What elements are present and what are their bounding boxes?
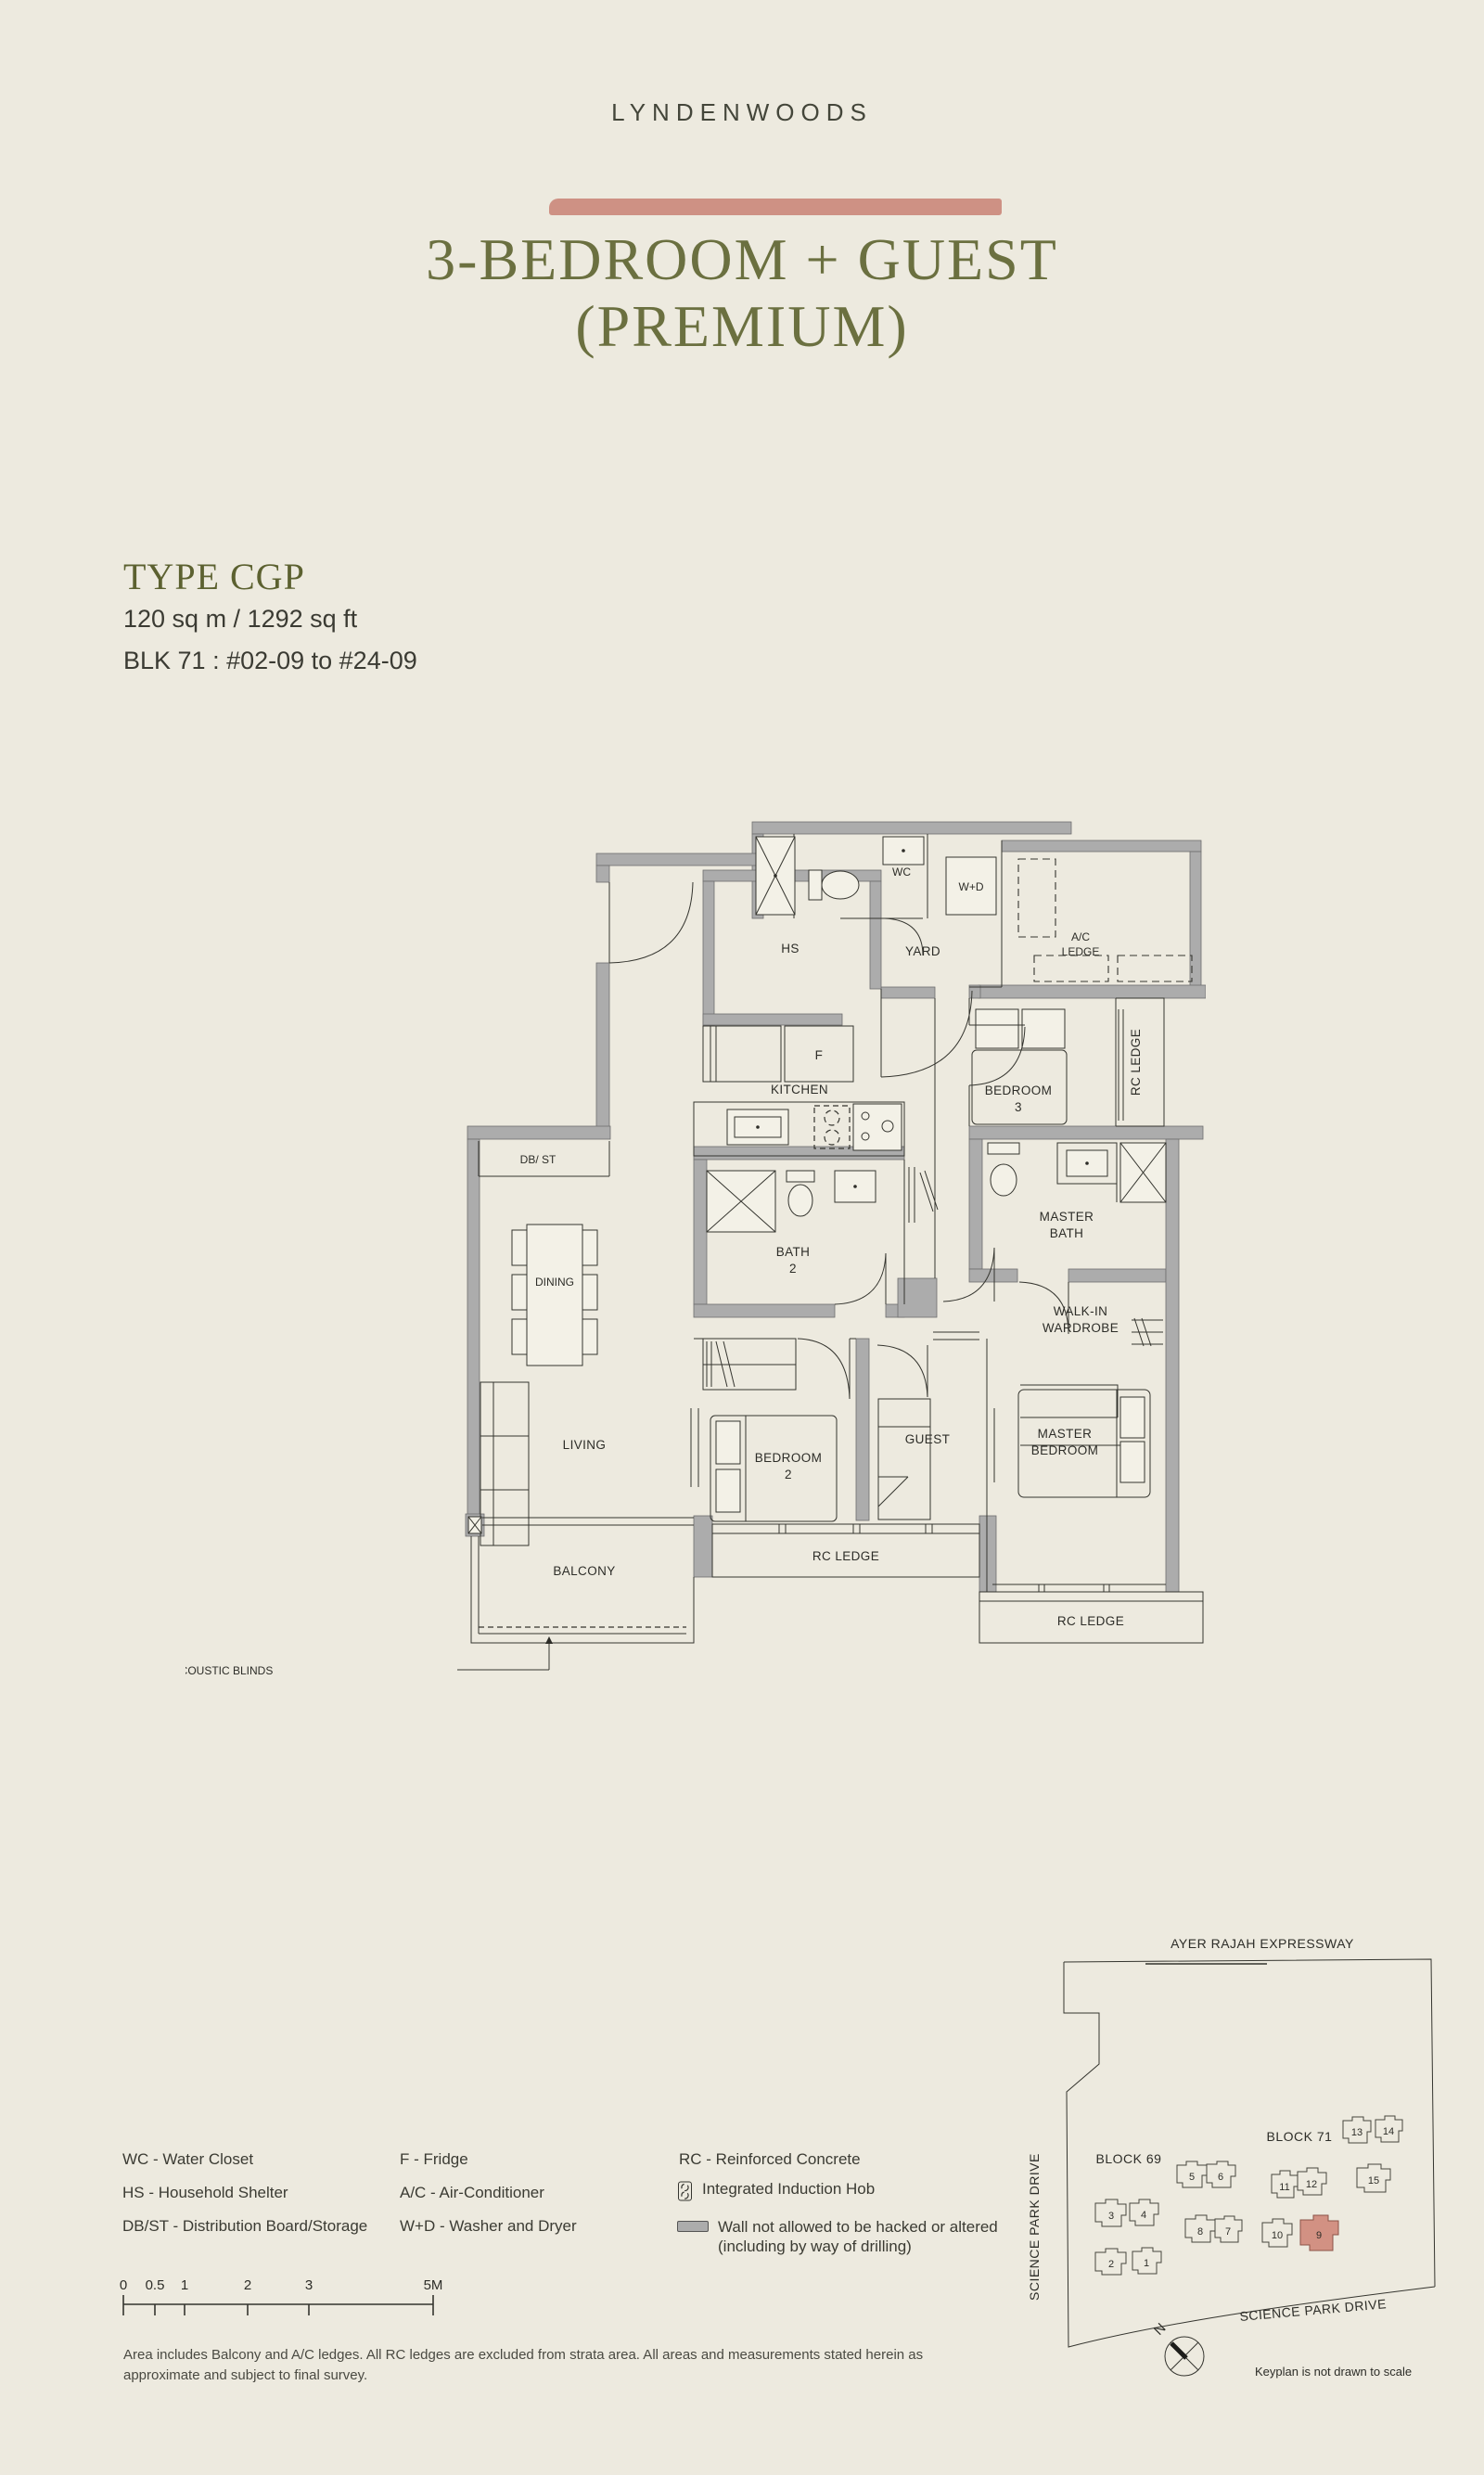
svg-text:1: 1: [1144, 2258, 1149, 2269]
unit-type: TYPE CGP: [123, 555, 305, 598]
legend-rc: RC - Reinforced Concrete: [679, 2150, 861, 2169]
highlighted-unit-9: 9: [1300, 2215, 1338, 2251]
balcony-structure: [457, 1517, 694, 1670]
yard-door: [881, 989, 972, 1077]
svg-text:9: 9: [1316, 2230, 1322, 2241]
block-71-label: BLOCK 71: [1267, 2129, 1333, 2144]
scale-bar: 0 0.5 1 2 3 5M: [109, 2273, 480, 2328]
legend-wd: W+D - Washer and Dryer: [400, 2217, 577, 2236]
svg-text:HS: HS: [781, 942, 800, 955]
svg-text:YARD: YARD: [905, 944, 940, 958]
structural-walls: [466, 822, 1206, 1592]
svg-text:BATH: BATH: [776, 1245, 811, 1259]
keyplan-expressway: AYER RAJAH EXPRESSWAY: [1171, 1936, 1354, 1951]
svg-text:W+D: W+D: [959, 880, 984, 893]
legend-hob-row: Integrated Induction Hob: [677, 2180, 875, 2202]
svg-text:WC: WC: [892, 866, 911, 878]
svg-text:2: 2: [789, 1262, 797, 1276]
svg-text:14: 14: [1383, 2126, 1394, 2137]
bedroom2-furniture: [691, 1339, 850, 1521]
svg-text:11: 11: [1279, 2182, 1289, 2193]
svg-text:5: 5: [1189, 2172, 1195, 2183]
footnote-line1: Area includes Balcony and A/C ledges. Al…: [123, 2345, 923, 2366]
legend-f: F - Fridge: [400, 2150, 468, 2169]
svg-text:10: 10: [1272, 2230, 1283, 2241]
svg-text:LEDGE: LEDGE: [1062, 945, 1100, 958]
svg-text:DINING: DINING: [535, 1276, 574, 1289]
svg-text:RC LEDGE: RC LEDGE: [1057, 1614, 1124, 1628]
ac-ledge: [1018, 859, 1192, 981]
keyplan-note: Keyplan is not drawn to scale: [1255, 2365, 1412, 2379]
svg-text:0: 0: [120, 2277, 127, 2293]
svg-text:KITCHEN: KITCHEN: [771, 1083, 828, 1096]
keyplan-road-bottom: SCIENCE PARK DRIVE: [1239, 2296, 1388, 2324]
unit-area: 120 sq m / 1292 sq ft: [123, 605, 357, 634]
legend-wall-line1: Wall not allowed to be hacked or altered: [718, 2218, 998, 2236]
wall-swatch: [677, 2221, 709, 2232]
footnote: Area includes Balcony and A/C ledges. Al…: [123, 2345, 923, 2386]
legend-wall-row: Wall not allowed to be hacked or altered…: [677, 2217, 998, 2256]
svg-text:2: 2: [244, 2277, 251, 2293]
svg-text:A/C: A/C: [1071, 930, 1090, 943]
svg-text:DB/ ST: DB/ ST: [520, 1153, 556, 1166]
svg-text:4: 4: [1141, 2210, 1146, 2221]
keyplan: AYER RAJAH EXPRESSWAY SCIENCE PARK DRIVE…: [1020, 1892, 1479, 2393]
svg-text:F: F: [815, 1048, 824, 1062]
svg-text:BATH: BATH: [1050, 1226, 1084, 1240]
svg-text:LIVING: LIVING: [563, 1438, 607, 1452]
svg-text:WALK-IN: WALK-IN: [1054, 1304, 1108, 1318]
svg-text:2: 2: [1108, 2259, 1114, 2270]
svg-text:BEDROOM: BEDROOM: [755, 1451, 823, 1465]
legend-dbst: DB/ST - Distribution Board/Storage: [122, 2217, 367, 2236]
svg-text:15: 15: [1368, 2175, 1379, 2186]
svg-text:5M: 5M: [424, 2277, 443, 2293]
svg-text:GUEST: GUEST: [905, 1432, 951, 1446]
block-69-label: BLOCK 69: [1096, 2151, 1162, 2166]
footnote-line2: approximate and subject to final survey.: [123, 2366, 923, 2386]
legend-wall: Wall not allowed to be hacked or altered…: [718, 2217, 998, 2256]
entry-door: [609, 882, 693, 963]
floorplan-page: LYNDENWOODS 3-BEDROOM + GUEST (PREMIUM) …: [0, 0, 1484, 2475]
keyplan-road-left: SCIENCE PARK DRIVE: [1027, 2153, 1042, 2301]
compass: N: [1151, 2320, 1204, 2376]
legend-ac: A/C - Air-Conditioner: [400, 2184, 544, 2202]
svg-text:RC LEDGE: RC LEDGE: [812, 1549, 879, 1563]
floor-plan: WC W+D YARD A/C LEDGE HS F KITCHEN BEDRO…: [185, 814, 1206, 1684]
dining-furniture: [512, 1225, 597, 1366]
svg-text:BALCONY: BALCONY: [553, 1564, 615, 1578]
svg-text:2: 2: [785, 1468, 792, 1481]
legend-hob: Integrated Induction Hob: [702, 2180, 875, 2199]
brand-name: LYNDENWOODS: [0, 98, 1484, 127]
title-line2: (PREMIUM): [0, 293, 1484, 360]
svg-text:WARDROBE: WARDROBE: [1043, 1321, 1119, 1335]
legend-wall-line2: (including by way of drilling): [718, 2238, 912, 2255]
svg-text:ACOUSTIC BLINDS: ACOUSTIC BLINDS: [185, 1664, 273, 1677]
title-line1: 3-BEDROOM + GUEST: [0, 226, 1484, 293]
keyplan-units: 5 6 3 4 8 7 2 1 11 12 13 14 15 10 9: [1095, 2116, 1402, 2275]
svg-text:8: 8: [1197, 2226, 1203, 2238]
legend-wc: WC - Water Closet: [122, 2150, 253, 2169]
svg-text:3: 3: [1108, 2211, 1114, 2222]
svg-text:7: 7: [1225, 2226, 1231, 2238]
svg-text:0.5: 0.5: [146, 2277, 165, 2293]
svg-text:RC LEDGE: RC LEDGE: [1129, 1029, 1143, 1096]
svg-text:3: 3: [305, 2277, 313, 2293]
svg-text:3: 3: [1015, 1100, 1022, 1114]
induction-hob-icon: [677, 2180, 693, 2202]
page-title: 3-BEDROOM + GUEST (PREMIUM): [0, 226, 1484, 360]
svg-text:BEDROOM: BEDROOM: [1031, 1443, 1099, 1457]
legend-hs: HS - Household Shelter: [122, 2184, 288, 2202]
svg-text:BEDROOM: BEDROOM: [985, 1084, 1053, 1097]
living-sofa: [480, 1382, 529, 1545]
unit-block: BLK 71 : #02-09 to #24-09: [123, 647, 417, 675]
svg-text:1: 1: [181, 2277, 188, 2293]
accent-bar: [549, 199, 1002, 215]
svg-text:13: 13: [1351, 2127, 1362, 2138]
svg-text:MASTER: MASTER: [1040, 1210, 1094, 1224]
svg-text:MASTER: MASTER: [1038, 1427, 1093, 1441]
north-label: N: [1151, 2320, 1170, 2339]
svg-text:12: 12: [1306, 2179, 1317, 2190]
svg-text:6: 6: [1218, 2172, 1223, 2183]
master-bedroom-furniture: [1018, 1390, 1150, 1592]
